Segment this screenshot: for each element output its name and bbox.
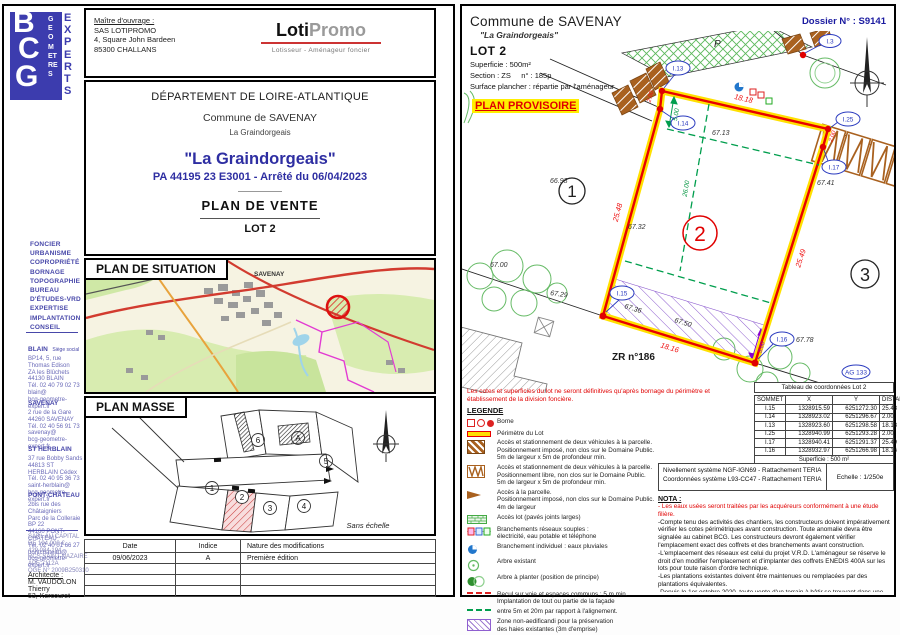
- masse-drawing: 6 A 5 1 2 3 4 Sans échelle: [86, 398, 434, 534]
- branchements-icon: [467, 526, 497, 536]
- dim-top: 18.18: [733, 92, 754, 105]
- coord-cell: I.16: [755, 447, 786, 456]
- legend-item-implantation: entre 5m et 20m par rapport à l'aligneme…: [467, 608, 655, 615]
- perimetre-icon: [467, 430, 497, 437]
- legend-label: Branchement individuel : eaux pluviales: [497, 543, 608, 550]
- legend-item-acces-parcelle: Accès à la parcelle. Positionnement impo…: [467, 489, 655, 511]
- vertex-i25: I.25: [843, 117, 854, 124]
- vertex-ag133: AG 133: [845, 370, 867, 377]
- dim-2600: 26.00: [681, 180, 691, 199]
- legend-item-acces-libre: Accès et stationnement de deux véhicules…: [467, 464, 655, 486]
- paves-icon: [467, 514, 497, 524]
- revision-header-date: Date: [85, 540, 176, 553]
- legend-label: Accès à la parcelle. Positionnement impo…: [497, 489, 654, 511]
- legend-item-arbre-a-planter: Arbre à planter (position de principe): [467, 574, 655, 588]
- masse-lot-3: 3: [268, 504, 273, 513]
- vertex-i3: I.3: [826, 39, 834, 46]
- coord-cell: 18.16: [880, 447, 894, 456]
- arbre-existant-icon: [467, 558, 497, 572]
- zone-non-aedificandi-icon: [467, 618, 497, 631]
- brand-subtitle: Lotisseur - Aménageur foncier: [236, 47, 406, 54]
- sidebar-divider: [26, 332, 78, 333]
- acces-impose-icon: [467, 439, 497, 454]
- revision-row-empty: [85, 564, 436, 575]
- coord-cell: 1328932.97: [786, 447, 833, 456]
- nota-paragraph: -Les plantations existantes doivent être…: [658, 573, 892, 589]
- coord-row: I.14 1328923.02 6251296.67 2.00: [755, 413, 894, 422]
- coord-cell: 1328923.60: [786, 422, 833, 431]
- coord-row: I.13 1328923.60 6251298.58 18.18: [755, 422, 894, 431]
- owner-address-1: 4, Square John Bardeen: [94, 35, 175, 45]
- geodesy-box: Nivellement système NGF-IGN69 - Rattache…: [658, 463, 894, 491]
- recul-rouge-icon: [467, 591, 497, 594]
- revision-date: 09/06/2023: [85, 553, 176, 564]
- coordinates-table: SOMMET X Y DISTANCE I.15 1328915.59 6251…: [754, 395, 894, 465]
- coord-cell: 6251266.98: [833, 447, 880, 456]
- lot-subtitle: LOT 2: [86, 223, 434, 235]
- plan-provisoire-badge: PLAN PROVISOIRE: [472, 99, 579, 113]
- plan-situation-title: PLAN DE SITUATION: [84, 258, 228, 280]
- scale-label: Echelle : 1/250e: [826, 464, 893, 490]
- north-arrow: [850, 37, 884, 107]
- plan-situation-box: SAVENAY PLAN DE SITUATION: [84, 258, 436, 394]
- page-subtitle-place: "La Graindorgeais": [480, 30, 558, 40]
- coord-cell: I.13: [755, 422, 786, 431]
- disclaimer-text: Les cotes et superficies du lot ne seron…: [467, 388, 767, 404]
- sidebar-divider-2: [26, 530, 78, 531]
- vertex-i16: I.16: [777, 337, 788, 344]
- nota-title: NOTA :: [658, 496, 892, 503]
- coord-row: I.16 1328932.97 6251266.98 18.16: [755, 447, 894, 456]
- coord-header: SOMMET: [755, 396, 786, 405]
- legend-label: Arbre à planter (position de principe): [497, 574, 599, 581]
- vertex-i15: I.15: [617, 291, 628, 298]
- coord-cell: 1328915.59: [786, 405, 833, 414]
- coord-row: I.15 1328915.59 6251272.30 25.48: [755, 405, 894, 414]
- office-name: PONT-CHÂTEAU: [28, 492, 80, 499]
- lot1-number: 1: [567, 182, 576, 201]
- services-list: FONCIER URBANISME COPROPRIÉTÉ BORNAGE TO…: [30, 240, 81, 332]
- lot-superficie: Superficie : 500m²: [470, 60, 531, 69]
- owner-address-2: 85300 CHALLANS: [94, 45, 175, 55]
- legend-item-zone-non-aedificandi: Zone non-aedificandi pour la préservatio…: [467, 618, 655, 633]
- dossier-number: Dossier N° : S9141: [802, 16, 886, 27]
- brand-promo: Promo: [309, 20, 366, 40]
- legal-block: SARL AU CAPITAL DE 194 000 € 429 034 194…: [28, 534, 89, 575]
- legend-item-acces-impose: Accès et stationnement de deux véhicules…: [467, 439, 655, 461]
- revision-indice: A: [176, 553, 241, 564]
- dim-6700: 67.00: [490, 262, 508, 269]
- coord-cell: 6251298.58: [833, 422, 880, 431]
- coord-cell: I.17: [755, 439, 786, 448]
- coord-row: I.17 1328940.41 6251291.37 25.49: [755, 439, 894, 448]
- coordinates-block: Tableau de coordonnées Lot 2 SOMMET X Y …: [754, 382, 894, 465]
- plan-masse-box: 6 A 5 1 2 3 4 Sans échelle PLAN MASSE: [84, 396, 436, 536]
- legend-item-arbre-existant: Arbre existant: [467, 558, 655, 572]
- dim-right: 25.49: [793, 247, 808, 269]
- coord-cell: 25.48: [880, 405, 894, 414]
- logo-letter-g: G: [15, 60, 38, 94]
- legend-label: Périmètre du Lot: [497, 430, 544, 437]
- brand-loti: Loti: [276, 20, 309, 40]
- nota-paragraph: -Depuis le 1er octobre 2020, toute vente…: [658, 589, 892, 592]
- dim-6741: 67.41: [817, 180, 835, 187]
- masse-scale-note: Sans échelle: [347, 521, 390, 530]
- legend-label: Branchements réseaux souples : électrici…: [497, 526, 596, 541]
- vertex-i14: I.14: [678, 121, 689, 128]
- office-name: ST HERBLAIN: [28, 446, 72, 453]
- page-title-commune: Commune de SAVENAY: [470, 14, 622, 29]
- title-divider-2: [200, 218, 320, 219]
- masse-lot-2: 2: [240, 493, 245, 502]
- eaux-pluviales-icon: [467, 543, 497, 555]
- coord-cell: 6251272.30: [833, 405, 880, 414]
- borne-icon: [467, 418, 497, 427]
- nota-block: NOTA : - Les eaux usées seront traitées …: [658, 496, 892, 592]
- revision-nature: Première édition: [241, 553, 436, 564]
- coord-cell: 2.00: [880, 413, 894, 422]
- coordinates-title: Tableau de coordonnées Lot 2: [754, 382, 894, 393]
- document-type: PLAN DE VENTE: [86, 198, 434, 213]
- arbre-a-planter-icon: [467, 574, 497, 588]
- nota-paragraph: -L'emplacement des réseaux est celui du …: [658, 550, 892, 573]
- existing-building: [462, 317, 554, 393]
- plan-masse-title: PLAN MASSE: [84, 396, 187, 418]
- logo-geometres: GEOMETRES: [48, 15, 58, 79]
- legend-label: Zone non-aedificandi pour la préservatio…: [497, 618, 613, 633]
- masse-lot-a: A: [295, 434, 301, 443]
- lot-plancher: Surface plancher : répartie par l'aménag…: [470, 82, 614, 91]
- right-page: P: [460, 4, 896, 597]
- owner-header-box: Maître d'ouvrage : SAS LOTIPROMO 4, Squa…: [84, 8, 436, 78]
- dim-6693: 66.93: [550, 178, 568, 185]
- north-arrow: [373, 410, 399, 462]
- map-city-label: SAVENAY: [254, 271, 285, 278]
- dim-6778: 67.78: [796, 337, 814, 344]
- logo-experts: EXPERTS: [64, 12, 75, 100]
- legend: LEGENDE Borne Périmètre du Lot Accès et …: [467, 406, 655, 635]
- coord-cell: 18.18: [880, 422, 894, 431]
- coord-cell: 6251293.28: [833, 430, 880, 439]
- coord-header: DISTANCE: [880, 396, 894, 405]
- revision-row-empty: [85, 586, 436, 597]
- department-title: DÉPARTEMENT DE LOIRE-ATLANTIQUE: [86, 91, 434, 103]
- legend-label: Accès et stationnement de deux véhicules…: [497, 464, 652, 486]
- band-p-label: P: [714, 39, 721, 50]
- office-tag: Siège social: [52, 347, 79, 353]
- legend-item-borne: Borne: [467, 418, 655, 427]
- lot-section: Section : ZS n° : 185p: [470, 71, 551, 80]
- lot2-number: 2: [694, 223, 706, 246]
- legend-label: Arbre existant: [497, 558, 536, 565]
- lot3-number: 3: [860, 265, 870, 285]
- coord-cell: 6251296.67: [833, 413, 880, 422]
- dim-6732: 67.32: [628, 224, 646, 231]
- brand-rule: [261, 42, 381, 44]
- coord-row: I.25 1328940.99 6251293.28 2.00: [755, 430, 894, 439]
- recul-vert-icon: [467, 608, 497, 611]
- coord-cell: I.25: [755, 430, 786, 439]
- bcg-logo: B C G GEOMETRES EXPERTS: [10, 12, 75, 100]
- project-title: "La Graindorgeais": [86, 150, 434, 169]
- coord-cell: 2.00: [880, 430, 894, 439]
- coord-cell: 25.49: [880, 439, 894, 448]
- revision-header-indice: Indice: [176, 540, 241, 553]
- legend-label: entre 5m et 20m par rapport à l'aligneme…: [497, 608, 618, 615]
- legend-item-eaux-pluviales: Branchement individuel : eaux pluviales: [467, 543, 655, 555]
- legend-item-branchements: Branchements réseaux souples : électrici…: [467, 526, 655, 541]
- masse-lot-4: 4: [302, 502, 307, 511]
- dim-left: 25.48: [611, 201, 625, 223]
- owner-label: Maître d'ouvrage :: [94, 16, 175, 26]
- place-title: La Graindorgeais: [86, 128, 434, 137]
- permit-number: PA 44195 23 E3001 - Arrêté du 06/04/2023: [86, 171, 434, 183]
- legend-label: Accès lot (pavés joints larges): [497, 514, 581, 521]
- legend-label: Accès et stationnement de deux véhicules…: [497, 439, 654, 461]
- masse-lot-5: 5: [324, 457, 329, 466]
- dim-6729: 67.29: [550, 290, 568, 299]
- coord-cell: 1328940.41: [786, 439, 833, 448]
- coord-cell: I.15: [755, 405, 786, 414]
- lot-name: LOT 2: [470, 44, 507, 58]
- coord-cell: 1328923.02: [786, 413, 833, 422]
- site-location-marker: [327, 296, 349, 318]
- revision-row-empty: [85, 575, 436, 586]
- title-block: DÉPARTEMENT DE LOIRE-ATLANTIQUE Commune …: [84, 80, 436, 256]
- lot-numbers: 1 2 3: [559, 178, 879, 288]
- office-name: SAVENAY: [28, 400, 58, 407]
- acces-parcelle-icon: [467, 489, 497, 500]
- nota-red-line: - Les eaux usées seront traitées par les…: [658, 503, 892, 519]
- masse-lot-6: 6: [256, 436, 261, 445]
- acces-libre-icon: [467, 464, 497, 478]
- owner-name: SAS LOTIPROMO: [94, 26, 175, 36]
- legend-label: Recul sur voie et espaces communs : 5 m …: [497, 591, 628, 606]
- legend-item-paves: Accès lot (pavés joints larges): [467, 514, 655, 524]
- parcel-zr-label: ZR n°186: [612, 352, 655, 363]
- office-name: BLAIN: [28, 346, 48, 353]
- left-page: B C G GEOMETRES EXPERTS FONCIER URBANISM…: [2, 4, 455, 597]
- coord-cell: I.14: [755, 413, 786, 422]
- commune-title: Commune de SAVENAY: [86, 112, 434, 124]
- masse-lot-1: 1: [210, 484, 215, 493]
- revision-header-nature: Nature des modifications: [241, 540, 436, 553]
- coord-cell: 1328940.99: [786, 430, 833, 439]
- revision-table: Date Indice Nature des modifications 09/…: [84, 539, 436, 597]
- coord-header: X: [786, 396, 833, 405]
- title-divider: [238, 191, 282, 192]
- lotipromo-logo: LotiPromo Lotisseur - Aménageur foncier: [236, 20, 406, 54]
- nota-paragraph: -Compte tenu des activités des chantiers…: [658, 519, 892, 550]
- legend-item-perimetre: Périmètre du Lot: [467, 430, 655, 437]
- coordinate-system: Coordonnées système L93-CC47 - Rattachem…: [663, 476, 822, 485]
- vertex-i17: I.17: [829, 165, 840, 172]
- levelling-system: Nivellement système NGF-IGN69 - Rattache…: [663, 467, 822, 476]
- revision-row: 09/06/2023 A Première édition: [85, 553, 436, 564]
- legend-item-recul: Recul sur voie et espaces communs : 5 m …: [467, 591, 655, 606]
- legend-label: Borne: [497, 418, 514, 425]
- coord-cell: 6251291.37: [833, 439, 880, 448]
- vertex-i13: I.13: [673, 66, 684, 73]
- coord-header: Y: [833, 396, 880, 405]
- legend-title: LEGENDE: [467, 406, 655, 415]
- dim-6713: 67.13: [712, 130, 730, 137]
